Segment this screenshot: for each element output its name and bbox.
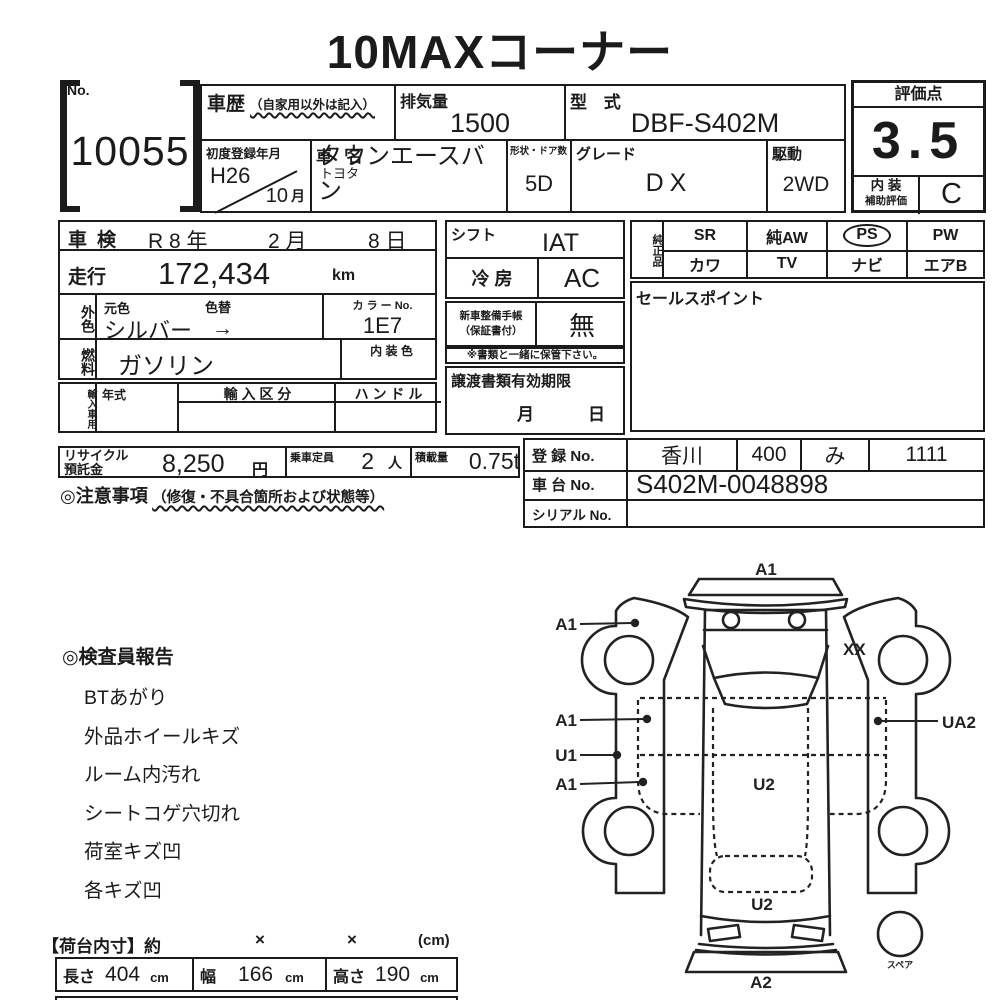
chassis-no-value: S402M-0048898 bbox=[628, 470, 983, 499]
report-item: シートコゲ穴切れ bbox=[84, 795, 240, 834]
exterior-color-row: 外色 元色 色替 シルバー → カ ラ ー No. 1E7 bbox=[58, 293, 437, 340]
inspection-label: 車検 bbox=[68, 225, 126, 252]
registration-number: 1111 bbox=[870, 440, 983, 470]
registration-no-label: 登 録 No. bbox=[525, 440, 628, 470]
doors-box: 形状・ドア数 5D bbox=[506, 139, 572, 213]
spare-tire-label: スペア bbox=[887, 960, 913, 970]
registration-kana: み bbox=[802, 440, 870, 470]
exterior-color-label: 外色 bbox=[60, 295, 97, 338]
capacity-cell: 乗車定員 2 人 bbox=[285, 448, 412, 476]
damage-label-right-side: UA2 bbox=[942, 713, 976, 732]
import-class-cell: 輸 入 区 分 bbox=[177, 384, 336, 431]
interior-grade-label-cell: 内 装 補助評価 bbox=[854, 177, 920, 214]
ac-box: 冷 房 AC bbox=[445, 257, 625, 299]
service-book-value: 無 bbox=[537, 303, 627, 345]
damage-label-left-fender: A1 bbox=[555, 615, 577, 634]
service-book-box: 新車整備手帳 （保証書付） 無 bbox=[445, 301, 625, 347]
lot-number: 10055 bbox=[62, 128, 198, 175]
handle-label: ハ ン ド ル bbox=[336, 384, 441, 403]
doors-value: 5D bbox=[508, 171, 570, 197]
caution-label: ◎注意事項 bbox=[60, 486, 148, 506]
recycle-label: リサイクル 預託金 bbox=[64, 449, 128, 477]
load-value: 0.75t bbox=[469, 448, 520, 475]
oem-label: 純正品 bbox=[632, 222, 664, 277]
equip-navi: ナビ bbox=[826, 250, 906, 278]
model-name: タウンエースバン bbox=[318, 136, 506, 206]
interior-color-label: 内 装 色 bbox=[342, 342, 441, 359]
damage-label-left-lower: A1 bbox=[555, 775, 577, 794]
transfer-day: 日 bbox=[588, 400, 605, 425]
fuel-row: 燃料 ガソリン 内 装 色 bbox=[58, 338, 437, 380]
aux-score-label: 補助評価 bbox=[854, 194, 918, 208]
sales-point-box: セールスポイント bbox=[630, 281, 985, 432]
displacement-box: 排気量 1500 bbox=[394, 84, 566, 141]
chassis-no-row: 車 台 No. S402M-0048898 bbox=[525, 470, 983, 501]
damage-label-front: A1 bbox=[755, 560, 777, 579]
caution-note: （修復・不具合箇所および状態等） bbox=[152, 490, 384, 506]
drivetrain-value: 2WD bbox=[768, 173, 844, 197]
report-item: 外品ホイールキズ bbox=[84, 718, 240, 757]
equip-tv: TV bbox=[746, 250, 826, 278]
model-code-box: 型 式 DBF-S402M bbox=[564, 84, 846, 141]
damage-label-left-rocker: U1 bbox=[555, 746, 577, 765]
first-registration-month-suffix: 月 bbox=[291, 186, 305, 206]
color-no-value: 1E7 bbox=[324, 313, 441, 339]
car-name-box: 車 名 トヨタ タウンエースバン bbox=[310, 139, 508, 213]
car-history-label: 車歴 bbox=[207, 89, 245, 116]
equip-airbag: エアB bbox=[906, 250, 983, 278]
auction-sheet: 10MAXコーナー No. 10055 車歴 （自家用以外は記入） 排気量 15… bbox=[0, 0, 1000, 1000]
equip-ps: PS bbox=[826, 222, 906, 250]
oem-equipment-box: 純正品 SR 純AW PS PW カワ TV ナビ エアB bbox=[630, 220, 985, 279]
score-box: 評価点 3.5 内 装 補助評価 C bbox=[851, 80, 986, 213]
cargo-dims-x1: × bbox=[255, 930, 265, 950]
damage-label-rear-bumper: A2 bbox=[750, 973, 772, 992]
drivetrain-label: 駆動 bbox=[772, 143, 802, 164]
color-no-cell: カ ラ ー No. 1E7 bbox=[322, 295, 441, 338]
report-item: 各キズ凹 bbox=[84, 872, 240, 911]
next-table-edge bbox=[55, 996, 458, 1000]
first-registration-box: 初度登録年月 H26 10 月 bbox=[200, 139, 312, 213]
chassis-no-label: 車 台 No. bbox=[525, 470, 628, 499]
load-label: 積載量 bbox=[415, 449, 448, 465]
capacity-label: 乗車定員 bbox=[290, 449, 334, 465]
mileage-value: 172,434 bbox=[158, 256, 270, 292]
mileage-label: 走行 bbox=[68, 262, 106, 289]
grade-box: グレード DX bbox=[570, 139, 768, 213]
recycle-value: 8,250 bbox=[162, 450, 225, 479]
cargo-width-cell: 幅 166 cm bbox=[194, 959, 327, 990]
registration-table: 登 録 No. 香川 400 み 1111 車 台 No. S402M-0048… bbox=[523, 438, 985, 528]
cargo-dashed-lines bbox=[638, 698, 886, 892]
recycle-unit: 円 bbox=[252, 456, 268, 480]
handle-cell: ハ ン ド ル bbox=[334, 384, 441, 431]
cargo-length-value: 404 bbox=[105, 963, 140, 987]
shift-value: IAT bbox=[542, 229, 579, 258]
cargo-dims-unit: (cm) bbox=[418, 932, 450, 949]
model-code-value: DBF-S402M bbox=[566, 108, 844, 139]
damage-label-rear-window: U2 bbox=[751, 895, 773, 914]
cargo-length-cell: 長さ 404 cm bbox=[57, 959, 194, 990]
recycle-row: リサイクル 預託金 8,250 円 乗車定員 2 人 積載量 0.75t bbox=[58, 446, 520, 478]
equip-ps-circled: PS bbox=[843, 224, 890, 247]
service-book-label-cell: 新車整備手帳 （保証書付） bbox=[447, 303, 537, 345]
registration-no-row: 登 録 No. 香川 400 み 1111 bbox=[525, 440, 983, 472]
sales-point-label: セールスポイント bbox=[636, 285, 764, 309]
mileage-unit: km bbox=[332, 267, 355, 285]
drivetrain-box: 駆動 2WD bbox=[766, 139, 846, 213]
damage-label-cargo: U2 bbox=[753, 775, 775, 794]
displacement-value: 1500 bbox=[396, 108, 564, 139]
no-label: No. bbox=[67, 82, 90, 98]
import-class-label: 輸 入 区 分 bbox=[179, 384, 336, 403]
report-item: BTあがり bbox=[84, 679, 240, 718]
damage-labels: A1 A1 A1 U1 A1 XX UA2 U2 U2 A2 スペア bbox=[555, 560, 976, 992]
cargo-dims-table: 長さ 404 cm 幅 166 cm 高さ 190 cm bbox=[55, 957, 458, 992]
transfer-docs-label: 譲渡書類有効期限 bbox=[451, 370, 571, 391]
ac-value: AC bbox=[537, 259, 627, 297]
serial-no-value bbox=[628, 499, 983, 528]
registration-area: 香川 bbox=[628, 440, 738, 470]
color-no-label: カ ラ ー No. bbox=[324, 297, 441, 313]
capacity-value: 2 bbox=[361, 448, 374, 475]
fuel-value: ガソリン bbox=[118, 346, 214, 381]
ac-label: 冷 房 bbox=[447, 259, 539, 297]
caution-line: ◎注意事項 （修復・不具合箇所および状態等） bbox=[60, 482, 384, 508]
serial-no-label: シリアル No. bbox=[525, 499, 628, 528]
transfer-docs-box: 譲渡書類有効期限 月 日 bbox=[445, 366, 625, 435]
report-item: 荷室キズ凹 bbox=[84, 833, 240, 872]
fuel-label: 燃料 bbox=[60, 340, 97, 378]
import-label: 輸入車用 bbox=[60, 384, 97, 431]
mileage-row: 走行 172,434 km bbox=[58, 249, 437, 295]
load-cell: 積載量 0.75t bbox=[410, 448, 524, 476]
car-damage-diagram: A1 A1 A1 U1 A1 XX UA2 U2 U2 A2 スペア bbox=[545, 548, 1000, 1000]
shift-box: シフト IAT bbox=[445, 220, 625, 259]
report-item: ルーム内汚れ bbox=[84, 756, 240, 795]
transfer-month: 月 bbox=[517, 400, 534, 425]
doors-label: 形状・ドア数 bbox=[510, 143, 567, 157]
equip-kawa: カワ bbox=[664, 250, 746, 278]
shift-label: シフト bbox=[451, 224, 496, 245]
score-label: 評価点 bbox=[854, 83, 983, 108]
damage-label-right-pillar: XX bbox=[843, 640, 866, 659]
interior-label: 内 装 bbox=[854, 177, 918, 194]
inspector-report: ◎検査員報告 BTあがり 外品ホイールキズ ルーム内汚れ シートコゲ穴切れ 荷室… bbox=[62, 642, 240, 910]
import-row: 輸入車用 年式 輸 入 区 分 ハ ン ド ル bbox=[58, 382, 437, 433]
score-value: 3.5 bbox=[854, 108, 983, 177]
grade-value: DX bbox=[572, 169, 766, 198]
page-title: 10MAXコーナー bbox=[0, 16, 1000, 82]
first-registration-year: H26 bbox=[210, 163, 250, 189]
cargo-dims-x2: × bbox=[347, 930, 357, 950]
interior-color-cell: 内 装 色 bbox=[340, 340, 441, 378]
serial-no-row: シリアル No. bbox=[525, 499, 983, 528]
equip-aw: 純AW bbox=[746, 222, 826, 250]
inspector-report-title: ◎検査員報告 bbox=[62, 642, 240, 669]
capacity-unit: 人 bbox=[388, 453, 402, 473]
cargo-height-cell: 高さ 190 cm bbox=[327, 959, 456, 990]
inspection-row: 車検 R 8 年 2 月 8 日 bbox=[58, 220, 437, 251]
equip-sr: SR bbox=[664, 222, 746, 250]
damage-label-left-mid: A1 bbox=[555, 711, 577, 730]
car-history-box: 車歴 （自家用以外は記入） bbox=[200, 84, 396, 141]
cargo-dims-header: 【荷台内寸】約 bbox=[42, 932, 161, 957]
cargo-width-value: 166 bbox=[238, 963, 273, 987]
inspector-report-list: BTあがり 外品ホイールキズ ルーム内汚れ シートコゲ穴切れ 荷室キズ凹 各キズ… bbox=[84, 679, 240, 910]
import-year-label: 年式 bbox=[102, 386, 126, 403]
color-change-label: 色替 bbox=[205, 297, 231, 316]
keep-note: ※書類と一緒に保管下さい。 bbox=[445, 347, 625, 364]
interior-grade-value: C bbox=[920, 177, 983, 214]
registration-class: 400 bbox=[738, 440, 802, 470]
grade-label: グレード bbox=[576, 143, 636, 164]
cargo-height-value: 190 bbox=[375, 963, 410, 987]
equip-pw: PW bbox=[906, 222, 983, 250]
car-history-note: （自家用以外は記入） bbox=[250, 94, 375, 113]
first-registration-month: 10 bbox=[266, 185, 288, 208]
first-registration-label: 初度登録年月 bbox=[206, 143, 281, 162]
